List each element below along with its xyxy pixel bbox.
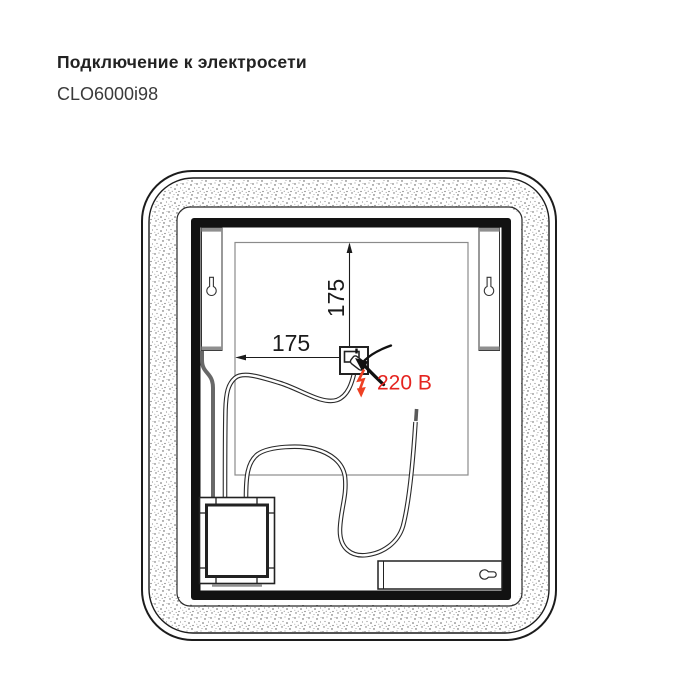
horizontal-keyhole-icon	[480, 570, 496, 579]
bottom-slot	[378, 561, 502, 589]
mounting-bracket-left	[202, 228, 223, 351]
led-driver-box	[200, 498, 275, 586]
wire-tip	[416, 409, 417, 421]
mounting-bracket-right	[479, 228, 500, 351]
wiring-diagram: 175 175	[0, 0, 700, 700]
dimension-label-horizontal: 175	[272, 330, 310, 356]
voltage-label: 220 В	[377, 372, 432, 395]
dimension-label-vertical: 175	[323, 279, 349, 317]
